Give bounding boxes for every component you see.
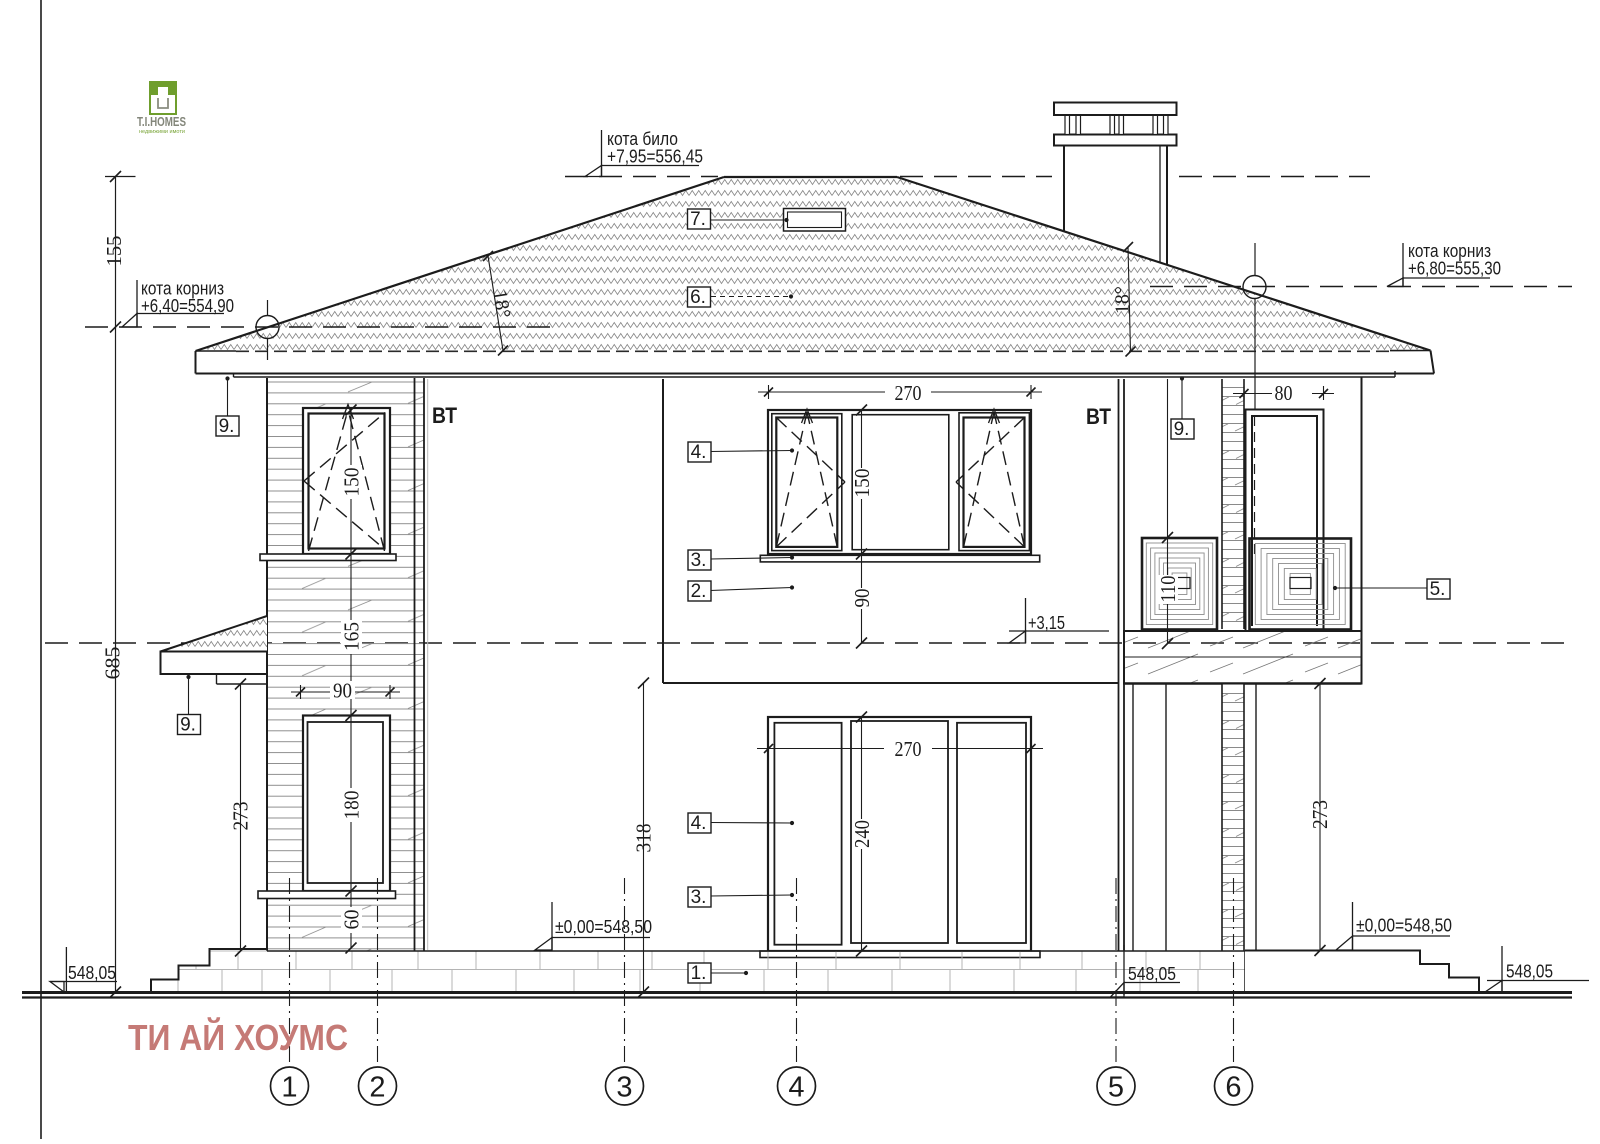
svg-text:6: 6: [1225, 1072, 1241, 1104]
svg-text:+7,95=556,45: +7,95=556,45: [607, 146, 703, 167]
svg-text:150: 150: [340, 468, 364, 497]
svg-text:ВТ: ВТ: [1086, 404, 1111, 429]
svg-text:3.: 3.: [691, 550, 707, 571]
svg-text:90: 90: [850, 589, 874, 608]
svg-text:9.: 9.: [219, 416, 235, 437]
svg-text:548,05: 548,05: [1506, 961, 1553, 982]
svg-text:685: 685: [101, 647, 125, 680]
svg-text:9.: 9.: [180, 715, 196, 736]
svg-text:ВТ: ВТ: [432, 403, 457, 428]
svg-text:318: 318: [632, 824, 656, 853]
svg-text:273: 273: [229, 802, 253, 831]
svg-text:270: 270: [895, 381, 922, 405]
svg-text:150: 150: [850, 469, 874, 498]
svg-text:7.: 7.: [690, 209, 706, 230]
svg-text:5.: 5.: [1430, 579, 1446, 600]
svg-text:1.: 1.: [691, 963, 707, 984]
svg-text:1: 1: [281, 1072, 297, 1104]
svg-text:180: 180: [340, 791, 364, 820]
svg-text:2.: 2.: [691, 581, 707, 602]
svg-text:270: 270: [895, 737, 922, 761]
svg-text:3: 3: [616, 1072, 632, 1104]
svg-text:240: 240: [850, 820, 874, 848]
svg-text:90: 90: [333, 679, 352, 703]
svg-text:110: 110: [1156, 576, 1180, 603]
svg-text:T.I.HOMES: T.I.HOMES: [137, 115, 186, 129]
svg-text:6.: 6.: [690, 287, 706, 308]
svg-text:недвижими имоти: недвижими имоти: [139, 129, 185, 135]
svg-text:4.: 4.: [691, 813, 707, 834]
svg-text:80: 80: [1275, 381, 1293, 405]
svg-text:273: 273: [1308, 800, 1332, 829]
svg-text:165: 165: [340, 622, 364, 651]
svg-text:155: 155: [102, 236, 126, 267]
svg-text:±0,00=548,50: ±0,00=548,50: [555, 916, 652, 937]
svg-text:4.: 4.: [691, 442, 707, 463]
svg-text:+6,80=555,30: +6,80=555,30: [1408, 258, 1501, 279]
svg-text:60: 60: [340, 910, 364, 930]
svg-text:548,05: 548,05: [68, 962, 116, 983]
svg-text:+3,15: +3,15: [1028, 612, 1065, 633]
svg-text:ТИ АЙ ХОУМС: ТИ АЙ ХОУМС: [128, 1016, 348, 1058]
svg-text:9.: 9.: [1174, 419, 1190, 440]
svg-text:3.: 3.: [691, 887, 707, 908]
svg-text:548,05: 548,05: [1128, 963, 1176, 984]
svg-text:18°: 18°: [488, 289, 514, 320]
svg-text:5: 5: [1108, 1072, 1124, 1104]
svg-text:±0,00=548,50: ±0,00=548,50: [1356, 915, 1452, 936]
svg-text:2: 2: [369, 1072, 385, 1104]
svg-text:4: 4: [788, 1072, 804, 1104]
svg-text:+6,40=554,90: +6,40=554,90: [141, 295, 234, 316]
svg-text:18°: 18°: [1111, 286, 1133, 314]
